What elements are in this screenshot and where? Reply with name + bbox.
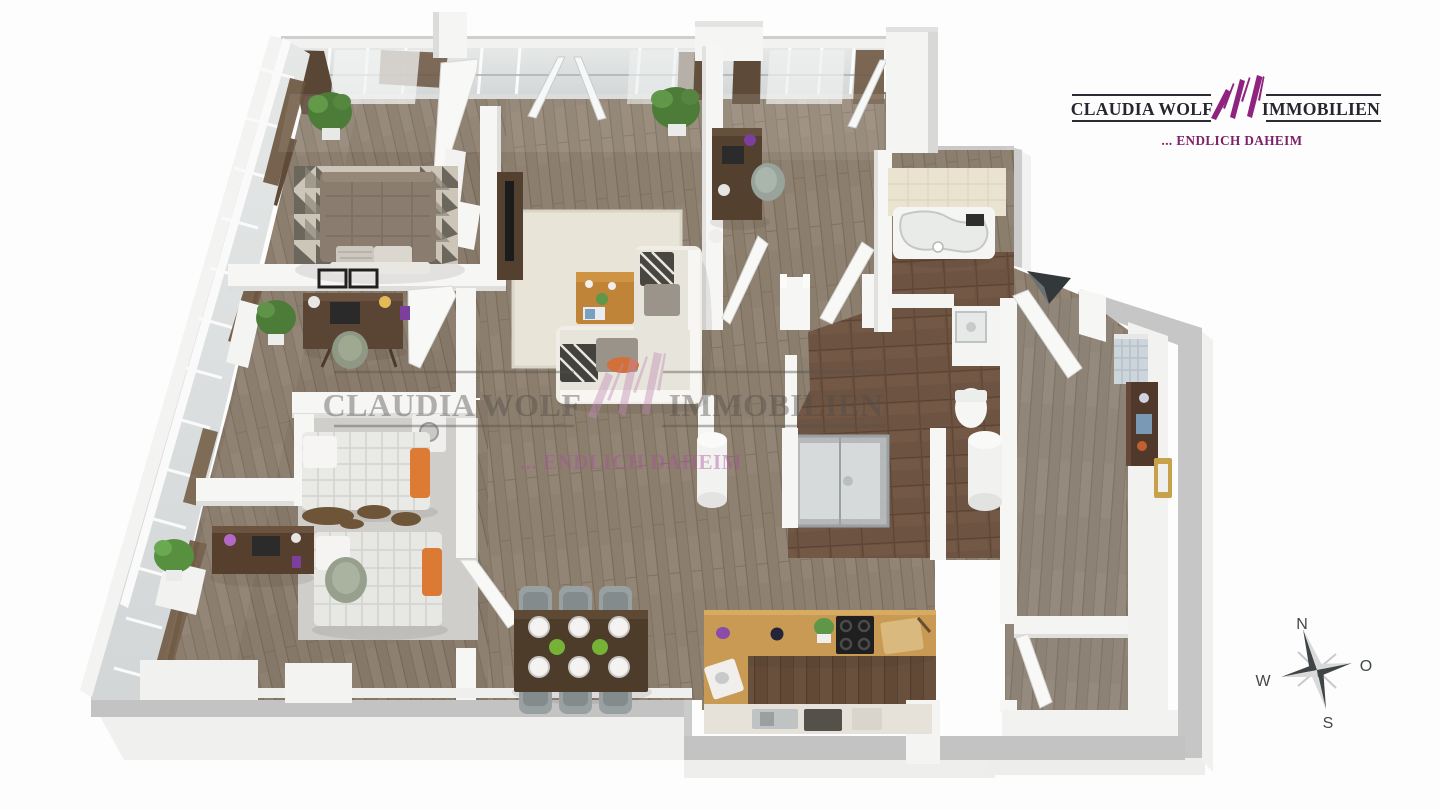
svg-text:IMMOBILIEN: IMMOBILIEN [669,387,884,423]
svg-text:... ENDLICH DAHEIM: ... ENDLICH DAHEIM [1162,133,1303,148]
svg-text:... ENDLICH DAHEIM: ... ENDLICH DAHEIM [520,450,742,474]
svg-text:S: S [1323,715,1334,732]
svg-text:N: N [1296,616,1308,633]
svg-text:CLAUDIA WOLF: CLAUDIA WOLF [323,387,582,423]
svg-text:W: W [1255,673,1271,690]
svg-text:IMMOBILIEN: IMMOBILIEN [1262,99,1380,119]
svg-text:O: O [1360,658,1372,675]
svg-text:CLAUDIA WOLF: CLAUDIA WOLF [1071,99,1214,119]
